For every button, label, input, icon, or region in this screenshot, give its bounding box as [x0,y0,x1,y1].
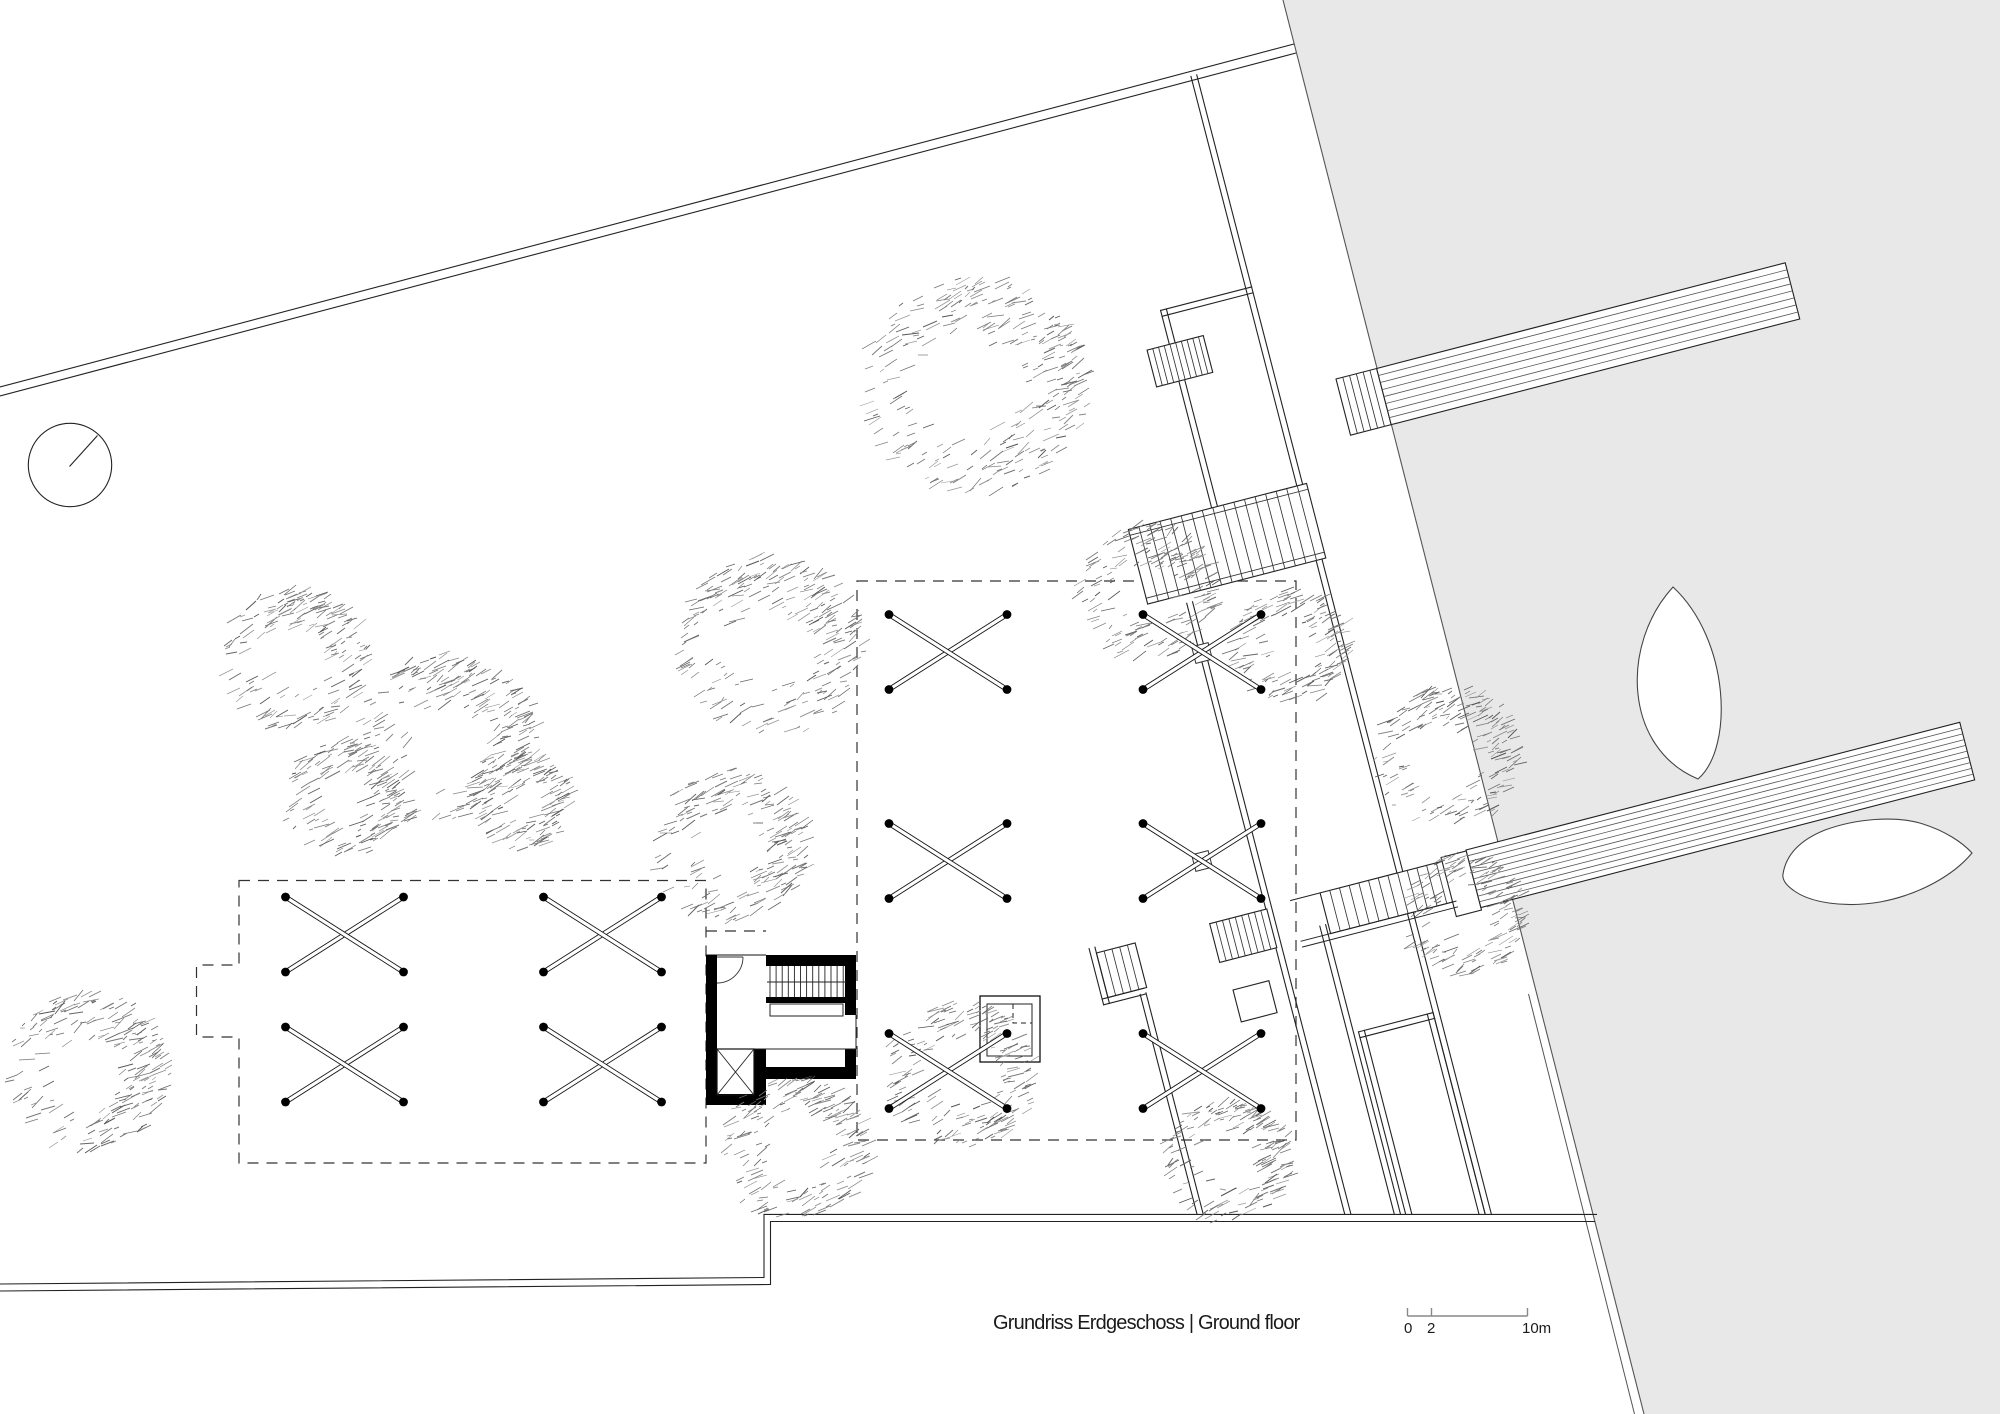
svg-text:2: 2 [1427,1320,1435,1337]
svg-text:0: 0 [1404,1320,1412,1337]
svg-text:Grundriss Erdgeschoss | Ground: Grundriss Erdgeschoss | Ground floor [993,1312,1301,1334]
svg-text:10m: 10m [1522,1320,1551,1337]
